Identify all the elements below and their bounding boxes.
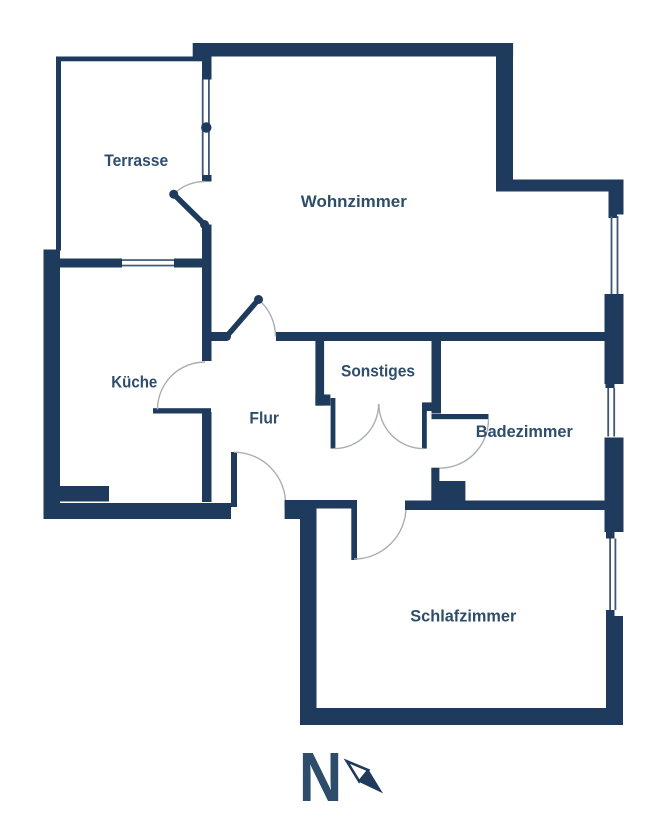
svg-text:N: N: [299, 738, 342, 816]
svg-text:Schlafzimmer: Schlafzimmer: [410, 607, 517, 626]
svg-text:Flur: Flur: [249, 409, 279, 428]
svg-text:Badezimmer: Badezimmer: [476, 422, 574, 441]
svg-text:Sonstiges: Sonstiges: [341, 362, 415, 381]
svg-text:Küche: Küche: [111, 373, 157, 392]
svg-text:Wohnzimmer: Wohnzimmer: [301, 192, 408, 211]
svg-text:Terrasse: Terrasse: [104, 151, 168, 170]
